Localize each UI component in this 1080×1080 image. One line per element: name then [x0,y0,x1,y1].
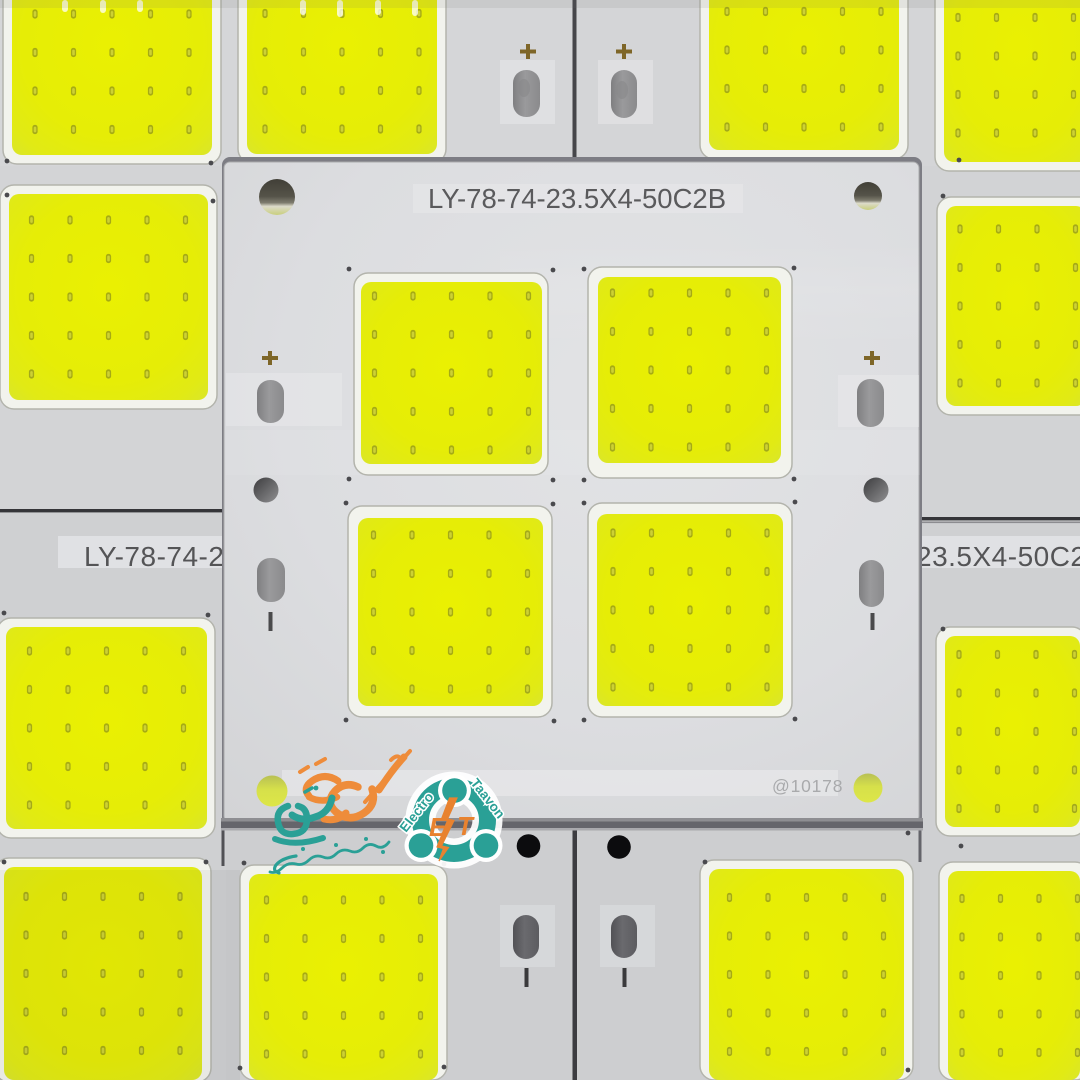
svg-text:LY-78-74-2: LY-78-74-2 [84,541,224,572]
svg-text:E: E [429,812,447,842]
svg-text:LY-78-74-23.5X4-50C2B: LY-78-74-23.5X4-50C2B [428,183,726,214]
svg-text:23.5X4-50C2B: 23.5X4-50C2B [916,541,1080,572]
svg-text:@10178: @10178 [772,776,843,796]
svg-text:T: T [457,811,475,841]
